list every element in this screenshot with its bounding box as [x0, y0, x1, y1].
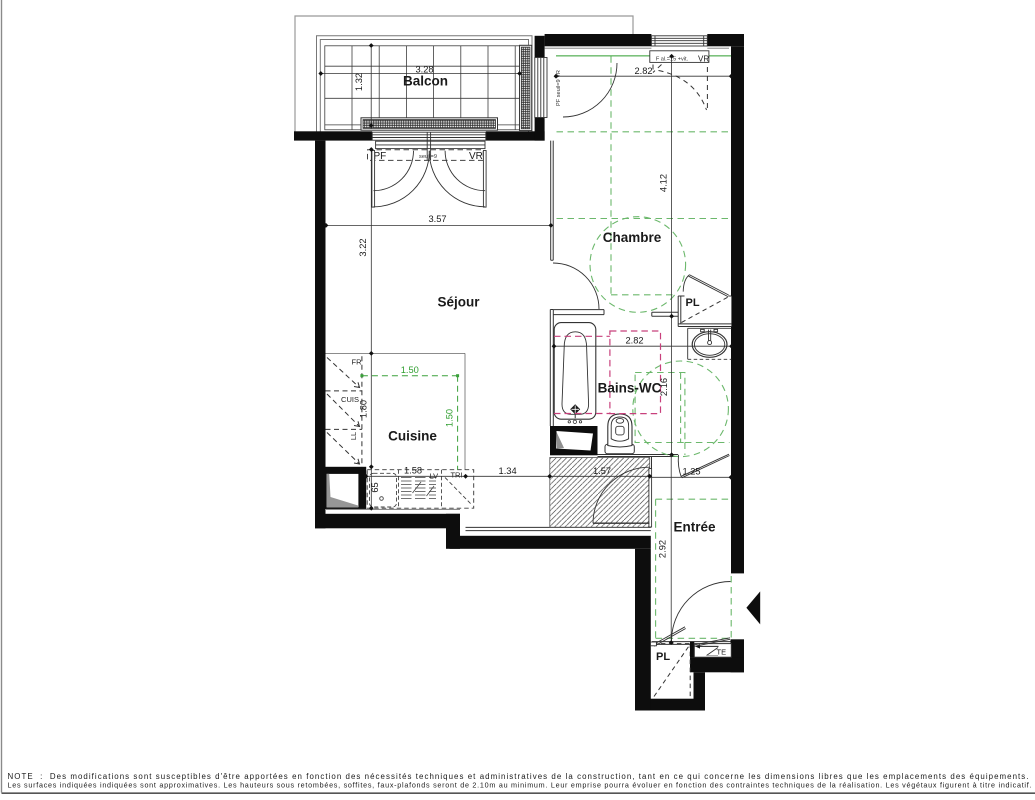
svg-text:1.50: 1.50 [401, 365, 419, 375]
svg-text:1.58: 1.58 [404, 465, 422, 475]
svg-text:Cuisine: Cuisine [388, 428, 437, 443]
svg-text:2.82: 2.82 [634, 66, 652, 76]
svg-text:1.34: 1.34 [499, 466, 517, 476]
svg-text:2.82: 2.82 [625, 336, 643, 346]
svg-text:1.57: 1.57 [593, 466, 611, 476]
svg-text:1.80: 1.80 [358, 400, 368, 418]
svg-text:PF: PF [374, 151, 387, 162]
svg-text:PL: PL [656, 651, 670, 663]
svg-text:VR: VR [469, 151, 483, 162]
svg-text:4.12: 4.12 [659, 174, 669, 192]
svg-text:Balcon: Balcon [403, 74, 448, 89]
svg-text:seuil=9: seuil=9 [419, 154, 437, 160]
svg-text:1.25: 1.25 [682, 466, 700, 476]
svg-text:NOTE : Des modifications son: NOTE : Des modifications sont susceptibl… [8, 772, 1029, 781]
svg-text:CUIS: CUIS [341, 395, 359, 404]
svg-text:PL: PL [686, 297, 700, 309]
svg-text:Séjour: Séjour [437, 294, 480, 309]
svg-text:3.57: 3.57 [428, 214, 446, 224]
svg-text:LL: LL [349, 432, 358, 440]
svg-text:1.50: 1.50 [445, 409, 455, 427]
svg-text:Chambre: Chambre [603, 230, 662, 245]
svg-text:2.92: 2.92 [657, 540, 667, 558]
svg-text:FR: FR [352, 358, 363, 367]
svg-text:65: 65 [370, 482, 380, 492]
svg-text:VR: VR [698, 55, 709, 64]
svg-text:3.22: 3.22 [358, 238, 368, 256]
svg-text:Bains-WC: Bains-WC [598, 381, 662, 396]
svg-text:Les surfaces indiquées indiqué: Les surfaces indiquées indiquées sont ap… [8, 781, 1032, 790]
svg-text:TRI: TRI [450, 471, 462, 480]
svg-text:1.32: 1.32 [354, 73, 364, 91]
svg-text:Entrée: Entrée [673, 519, 716, 534]
